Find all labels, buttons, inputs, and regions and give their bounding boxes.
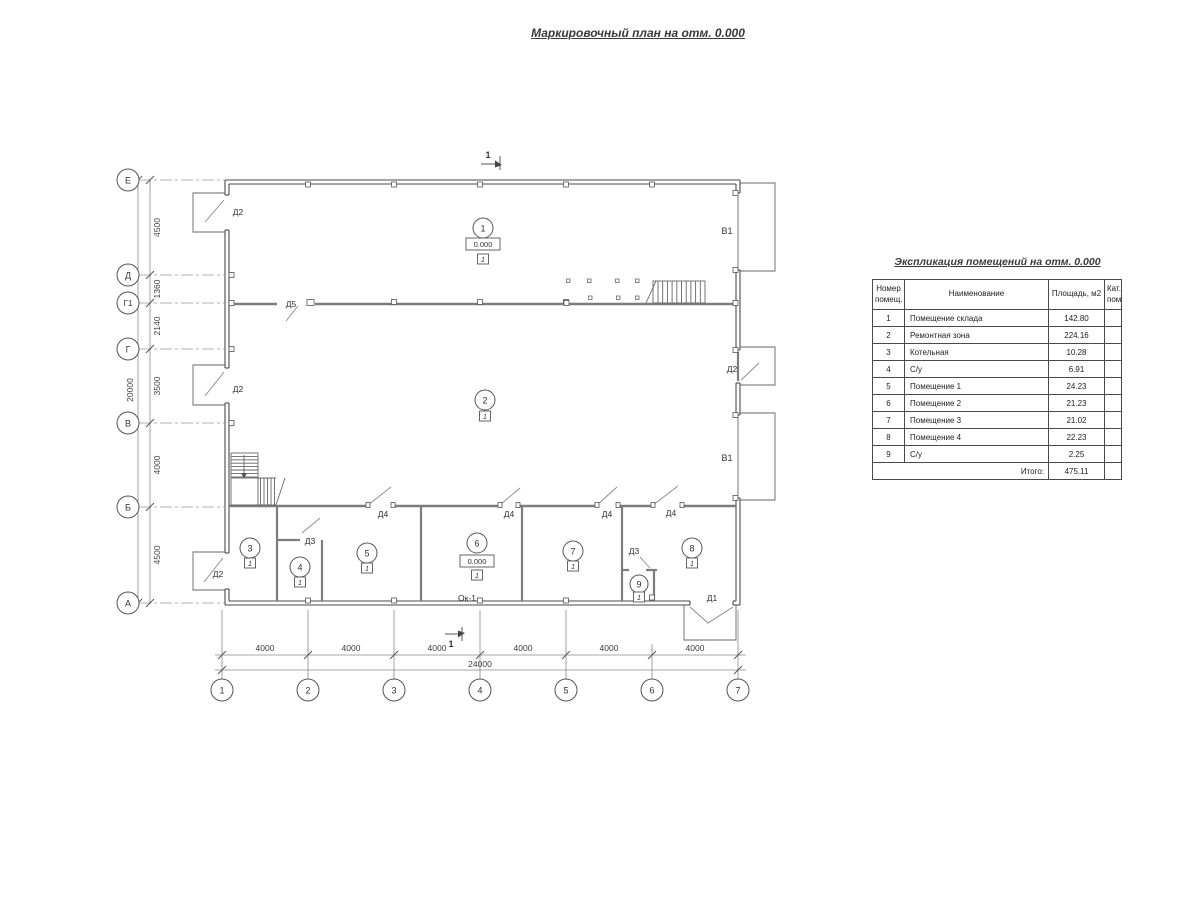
- dim-row-4: 4000: [152, 455, 162, 474]
- col-header-name: Наименование: [905, 280, 1049, 310]
- table-row: 5Помещение 124.23: [873, 378, 1122, 395]
- svg-text:А: А: [125, 598, 131, 608]
- svg-text:5: 5: [563, 685, 568, 695]
- room-marker-8: 8 1: [682, 538, 702, 568]
- door-label-d2: Д2: [233, 384, 244, 394]
- room-marker-7: 7 1: [563, 541, 583, 571]
- room-category: 1: [690, 561, 694, 568]
- explication-table-block: Экспликация помещений на отм. 0.000 Номе…: [872, 256, 1123, 480]
- section-mark-bottom: 1: [445, 627, 465, 649]
- section-number: 1: [448, 639, 453, 649]
- dim-row-2: 2140: [152, 316, 162, 335]
- table-row: 1Помещение склада142.80: [873, 310, 1122, 327]
- svg-text:В: В: [125, 418, 131, 428]
- explication-title: Экспликация помещений на отм. 0.000: [872, 256, 1123, 268]
- axis-bubble-col-5: 6: [641, 679, 663, 701]
- svg-text:1: 1: [219, 685, 224, 695]
- room-number: 5: [364, 548, 369, 558]
- room-marker-4: 4 1: [290, 557, 310, 587]
- door-label-d2: Д2: [233, 207, 244, 217]
- table-row: 3Котельная10.28: [873, 344, 1122, 361]
- dim-col-total: 24000: [468, 659, 492, 669]
- axis-bubble-row-2: Г1: [117, 292, 139, 314]
- axis-bubble-row-5: Б: [117, 496, 139, 518]
- room-elevation: 0.000: [474, 240, 493, 249]
- explication-table: Номер помещ. Наименование Площадь, м2 Ка…: [872, 279, 1122, 480]
- room-marker-6: 6 0.000 1: [460, 533, 494, 580]
- axis-bubble-col-2: 3: [383, 679, 405, 701]
- svg-text:7: 7: [735, 685, 740, 695]
- door-label-d4: Д4: [666, 508, 677, 518]
- dim-col-1: 4000: [342, 643, 361, 653]
- door-label-d4: Д4: [504, 509, 515, 519]
- door-label-d1: Д1: [707, 593, 718, 603]
- dim-row-0: 4500: [152, 218, 162, 237]
- svg-text:4: 4: [477, 685, 482, 695]
- table-row: 9С/у2.25: [873, 446, 1122, 463]
- row-axes: 4500 1360 2140 3500 4000 4500 20000 Е Д …: [117, 169, 224, 614]
- room-category: 1: [475, 573, 479, 580]
- dim-col-2: 4000: [428, 643, 447, 653]
- loading-ramp: [564, 279, 705, 306]
- room-marker-5: 5 1: [357, 543, 377, 573]
- col-header-num: Номер помещ.: [873, 280, 905, 310]
- gate-label-v1: В1: [721, 453, 732, 463]
- room-number: 6: [474, 538, 479, 548]
- section-number: 1: [485, 150, 490, 160]
- room-number: 2: [482, 395, 487, 405]
- svg-text:Е: Е: [125, 175, 131, 185]
- window-label-ok1: Ок-1: [458, 593, 476, 603]
- axis-bubble-row-1: Д: [117, 264, 139, 286]
- gate-label-v1: В1: [721, 226, 732, 236]
- room-category: 1: [637, 595, 641, 602]
- table-row: 2Ремонтная зона224.16: [873, 327, 1122, 344]
- section-mark-top: 1: [481, 150, 502, 170]
- axis-bubble-col-0: 1: [211, 679, 233, 701]
- total-area: 475.11: [1049, 463, 1105, 480]
- col-header-area: Площадь, м2: [1049, 280, 1105, 310]
- svg-text:Д: Д: [125, 270, 131, 280]
- axis-bubble-row-4: В: [117, 412, 139, 434]
- door-label-d4: Д4: [378, 509, 389, 519]
- svg-text:Г: Г: [126, 344, 131, 354]
- room-category: 1: [365, 566, 369, 573]
- door-label-d3: Д3: [629, 546, 640, 556]
- room-number: 4: [297, 562, 302, 572]
- room-category: 1: [481, 257, 485, 264]
- table-row: 4С/у6.91: [873, 361, 1122, 378]
- room-marker-3: 3 1: [240, 538, 260, 568]
- room-elevation: 0.000: [468, 557, 487, 566]
- room-category: 1: [298, 580, 302, 587]
- room-category: 1: [571, 564, 575, 571]
- svg-text:2: 2: [305, 685, 310, 695]
- axis-bubble-row-3: Г: [117, 338, 139, 360]
- dim-col-4: 4000: [600, 643, 619, 653]
- axis-bubble-col-6: 7: [727, 679, 749, 701]
- axis-bubble-col-4: 5: [555, 679, 577, 701]
- svg-text:3: 3: [391, 685, 396, 695]
- door-label-d5: Д5: [286, 299, 297, 309]
- total-label: Итого:: [873, 463, 1049, 480]
- dim-row-1: 1360: [152, 279, 162, 298]
- dim-row-5: 4500: [152, 545, 162, 564]
- col-axes: 4000 4000 4000 4000 4000 4000 24000 1 2 …: [211, 610, 749, 701]
- door-label-d2: Д2: [727, 364, 738, 374]
- dim-row-total: 20000: [125, 378, 135, 402]
- svg-text:6: 6: [649, 685, 654, 695]
- axis-bubble-row-0: Е: [117, 169, 139, 191]
- room-number: 8: [689, 543, 694, 553]
- room-marker-9: 9 1: [630, 575, 648, 602]
- dim-col-0: 4000: [256, 643, 275, 653]
- room-category: 1: [483, 414, 487, 421]
- table-row: 7Помещение 321.02: [873, 412, 1122, 429]
- room-number: 1: [480, 223, 485, 233]
- dim-col-5: 4000: [686, 643, 705, 653]
- room-marker-1: 1 0.000 1: [466, 218, 500, 264]
- axis-bubble-row-6: А: [117, 592, 139, 614]
- table-total-row: Итого: 475.11: [873, 463, 1122, 480]
- room-number: 7: [570, 546, 575, 556]
- room-number: 9: [636, 579, 641, 589]
- table-header-row: Номер помещ. Наименование Площадь, м2 Ка…: [873, 280, 1122, 310]
- door-label-d4: Д4: [602, 509, 613, 519]
- col-header-cat: Кат. пом.: [1105, 280, 1122, 310]
- axis-bubble-col-3: 4: [469, 679, 491, 701]
- dim-col-3: 4000: [514, 643, 533, 653]
- room-category: 1: [248, 561, 252, 568]
- door-label-d3: Д3: [305, 536, 316, 546]
- stairs: [231, 453, 285, 505]
- svg-text:Б: Б: [125, 502, 131, 512]
- drawing-sheet: Маркировочный план на отм. 0.000: [0, 0, 1200, 900]
- room-number: 3: [247, 543, 252, 553]
- svg-text:Г1: Г1: [124, 299, 133, 308]
- dim-row-3: 3500: [152, 376, 162, 395]
- table-row: 8Помещение 422.23: [873, 429, 1122, 446]
- door-label-d2: Д2: [213, 569, 224, 579]
- table-row: 6Помещение 221.23: [873, 395, 1122, 412]
- axis-bubble-col-1: 2: [297, 679, 319, 701]
- room-marker-2: 2 1: [475, 390, 495, 421]
